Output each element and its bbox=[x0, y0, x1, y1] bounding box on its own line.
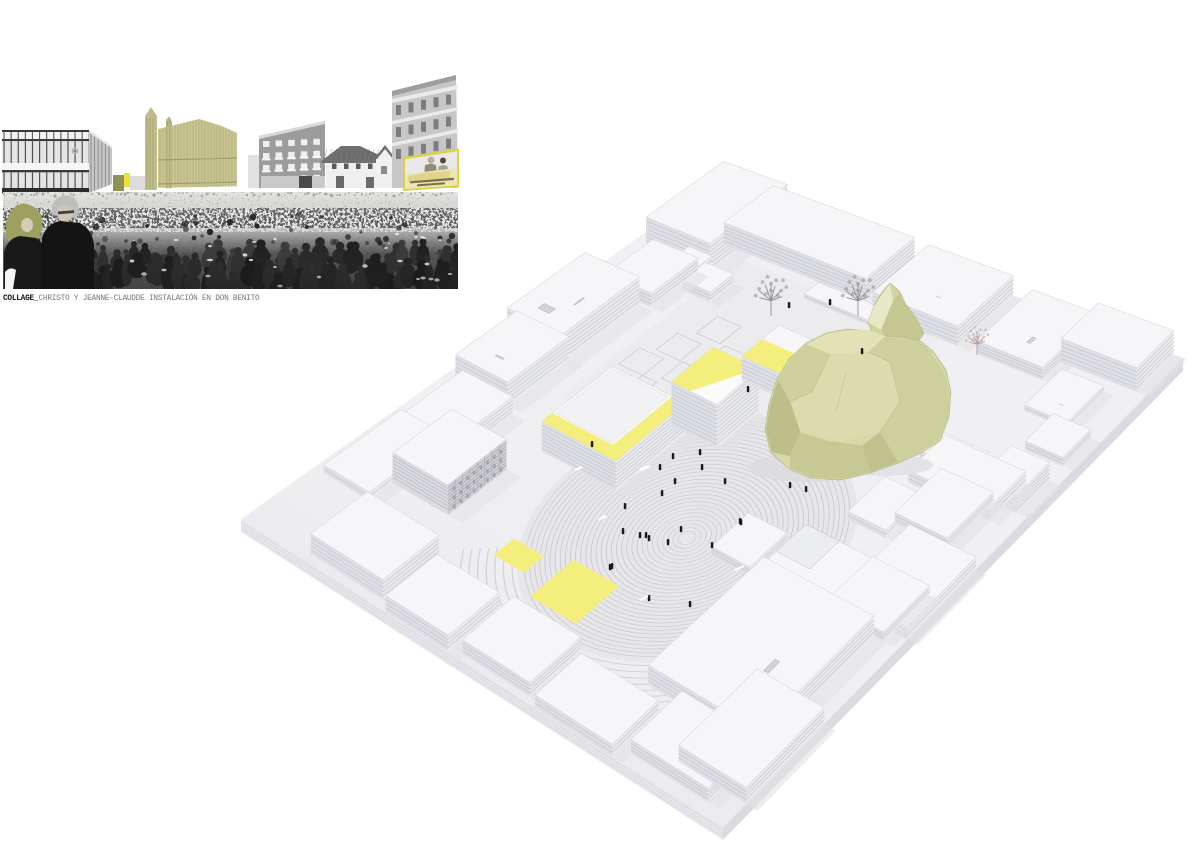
svg-text:CHRISTO Y JEANNE-CLAUDDE INSTA: CHRISTO Y JEANNE-CLAUDDE INSTALACIÓN EN … bbox=[39, 293, 261, 303]
svg-text:COLLAGE_: COLLAGE_ bbox=[3, 295, 39, 303]
